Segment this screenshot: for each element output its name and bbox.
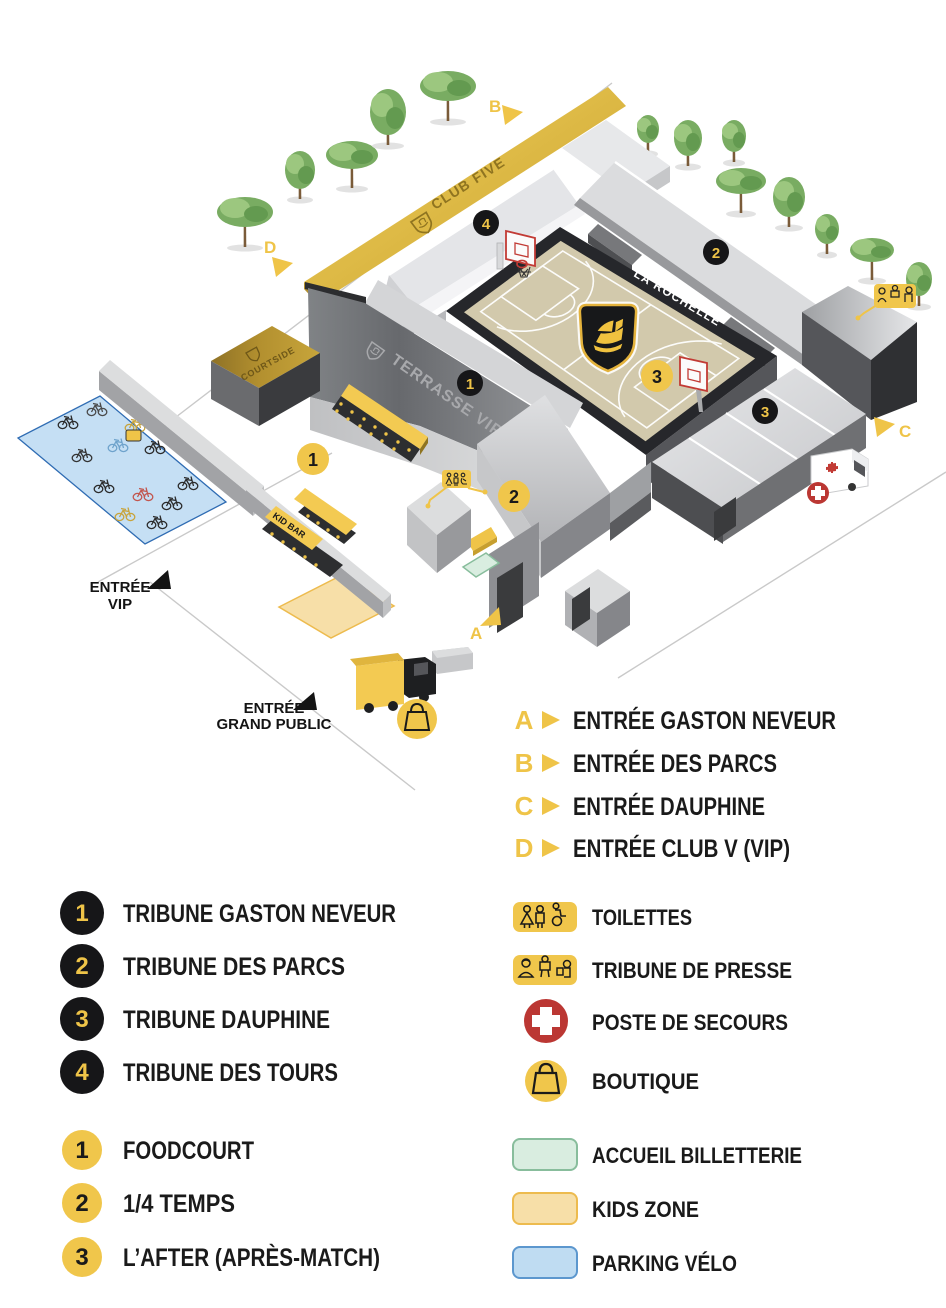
svg-text:3: 3	[652, 367, 662, 387]
svg-text:1: 1	[308, 450, 318, 470]
svg-text:D: D	[264, 238, 276, 257]
svg-text:KIDS ZONE: KIDS ZONE	[592, 1197, 699, 1222]
svg-text:FOODCOURT: FOODCOURT	[123, 1137, 254, 1165]
svg-text:L’AFTER (APRÈS-MATCH): L’AFTER (APRÈS-MATCH)	[123, 1243, 380, 1272]
svg-text:ENTRÉE DAUPHINE: ENTRÉE DAUPHINE	[573, 792, 765, 821]
svg-text:1: 1	[466, 376, 474, 393]
svg-text:2: 2	[712, 245, 720, 262]
svg-text:POSTE DE SECOURS: POSTE DE SECOURS	[592, 1010, 788, 1035]
svg-text:A: A	[470, 624, 482, 643]
svg-text:ENTRÉE: ENTRÉE	[90, 579, 151, 596]
svg-text:GRAND PUBLIC: GRAND PUBLIC	[217, 716, 332, 733]
svg-text:VIP: VIP	[108, 596, 132, 613]
svg-text:PARKING VÉLO: PARKING VÉLO	[592, 1251, 737, 1276]
svg-text:ACCUEIL BILLETTERIE: ACCUEIL BILLETTERIE	[592, 1143, 802, 1168]
svg-text:D: D	[515, 833, 534, 863]
svg-text:TOILETTES: TOILETTES	[592, 905, 692, 930]
svg-text:3: 3	[75, 1244, 88, 1271]
svg-text:B: B	[515, 748, 534, 778]
svg-text:TRIBUNE DAUPHINE: TRIBUNE DAUPHINE	[123, 1006, 330, 1034]
svg-text:2: 2	[75, 1190, 88, 1217]
svg-text:C: C	[899, 422, 911, 441]
svg-text:2: 2	[509, 487, 519, 507]
svg-text:TRIBUNE GASTON NEVEUR: TRIBUNE GASTON NEVEUR	[123, 900, 396, 928]
svg-text:3: 3	[75, 1006, 88, 1033]
svg-text:1: 1	[75, 1137, 88, 1164]
svg-text:TRIBUNE DES TOURS: TRIBUNE DES TOURS	[123, 1059, 338, 1087]
svg-text:BOUTIQUE: BOUTIQUE	[592, 1069, 699, 1094]
svg-text:ENTRÉE DES PARCS: ENTRÉE DES PARCS	[573, 749, 777, 778]
svg-text:1: 1	[75, 900, 88, 927]
svg-text:A: A	[515, 705, 534, 735]
svg-text:1/4 TEMPS: 1/4 TEMPS	[123, 1190, 235, 1218]
svg-text:4: 4	[75, 1059, 89, 1086]
svg-text:TRIBUNE DE PRESSE: TRIBUNE DE PRESSE	[592, 958, 792, 983]
svg-text:ENTRÉE CLUB V (VIP): ENTRÉE CLUB V (VIP)	[573, 834, 790, 863]
svg-text:ENTRÉE GASTON NEVEUR: ENTRÉE GASTON NEVEUR	[573, 706, 836, 735]
svg-text:C: C	[515, 791, 534, 821]
svg-text:4: 4	[482, 216, 491, 233]
svg-text:B: B	[489, 97, 501, 116]
svg-text:ENTRÉE: ENTRÉE	[244, 700, 305, 717]
svg-text:3: 3	[761, 404, 769, 421]
svg-text:TRIBUNE DES PARCS: TRIBUNE DES PARCS	[123, 953, 345, 981]
svg-text:2: 2	[75, 953, 88, 980]
